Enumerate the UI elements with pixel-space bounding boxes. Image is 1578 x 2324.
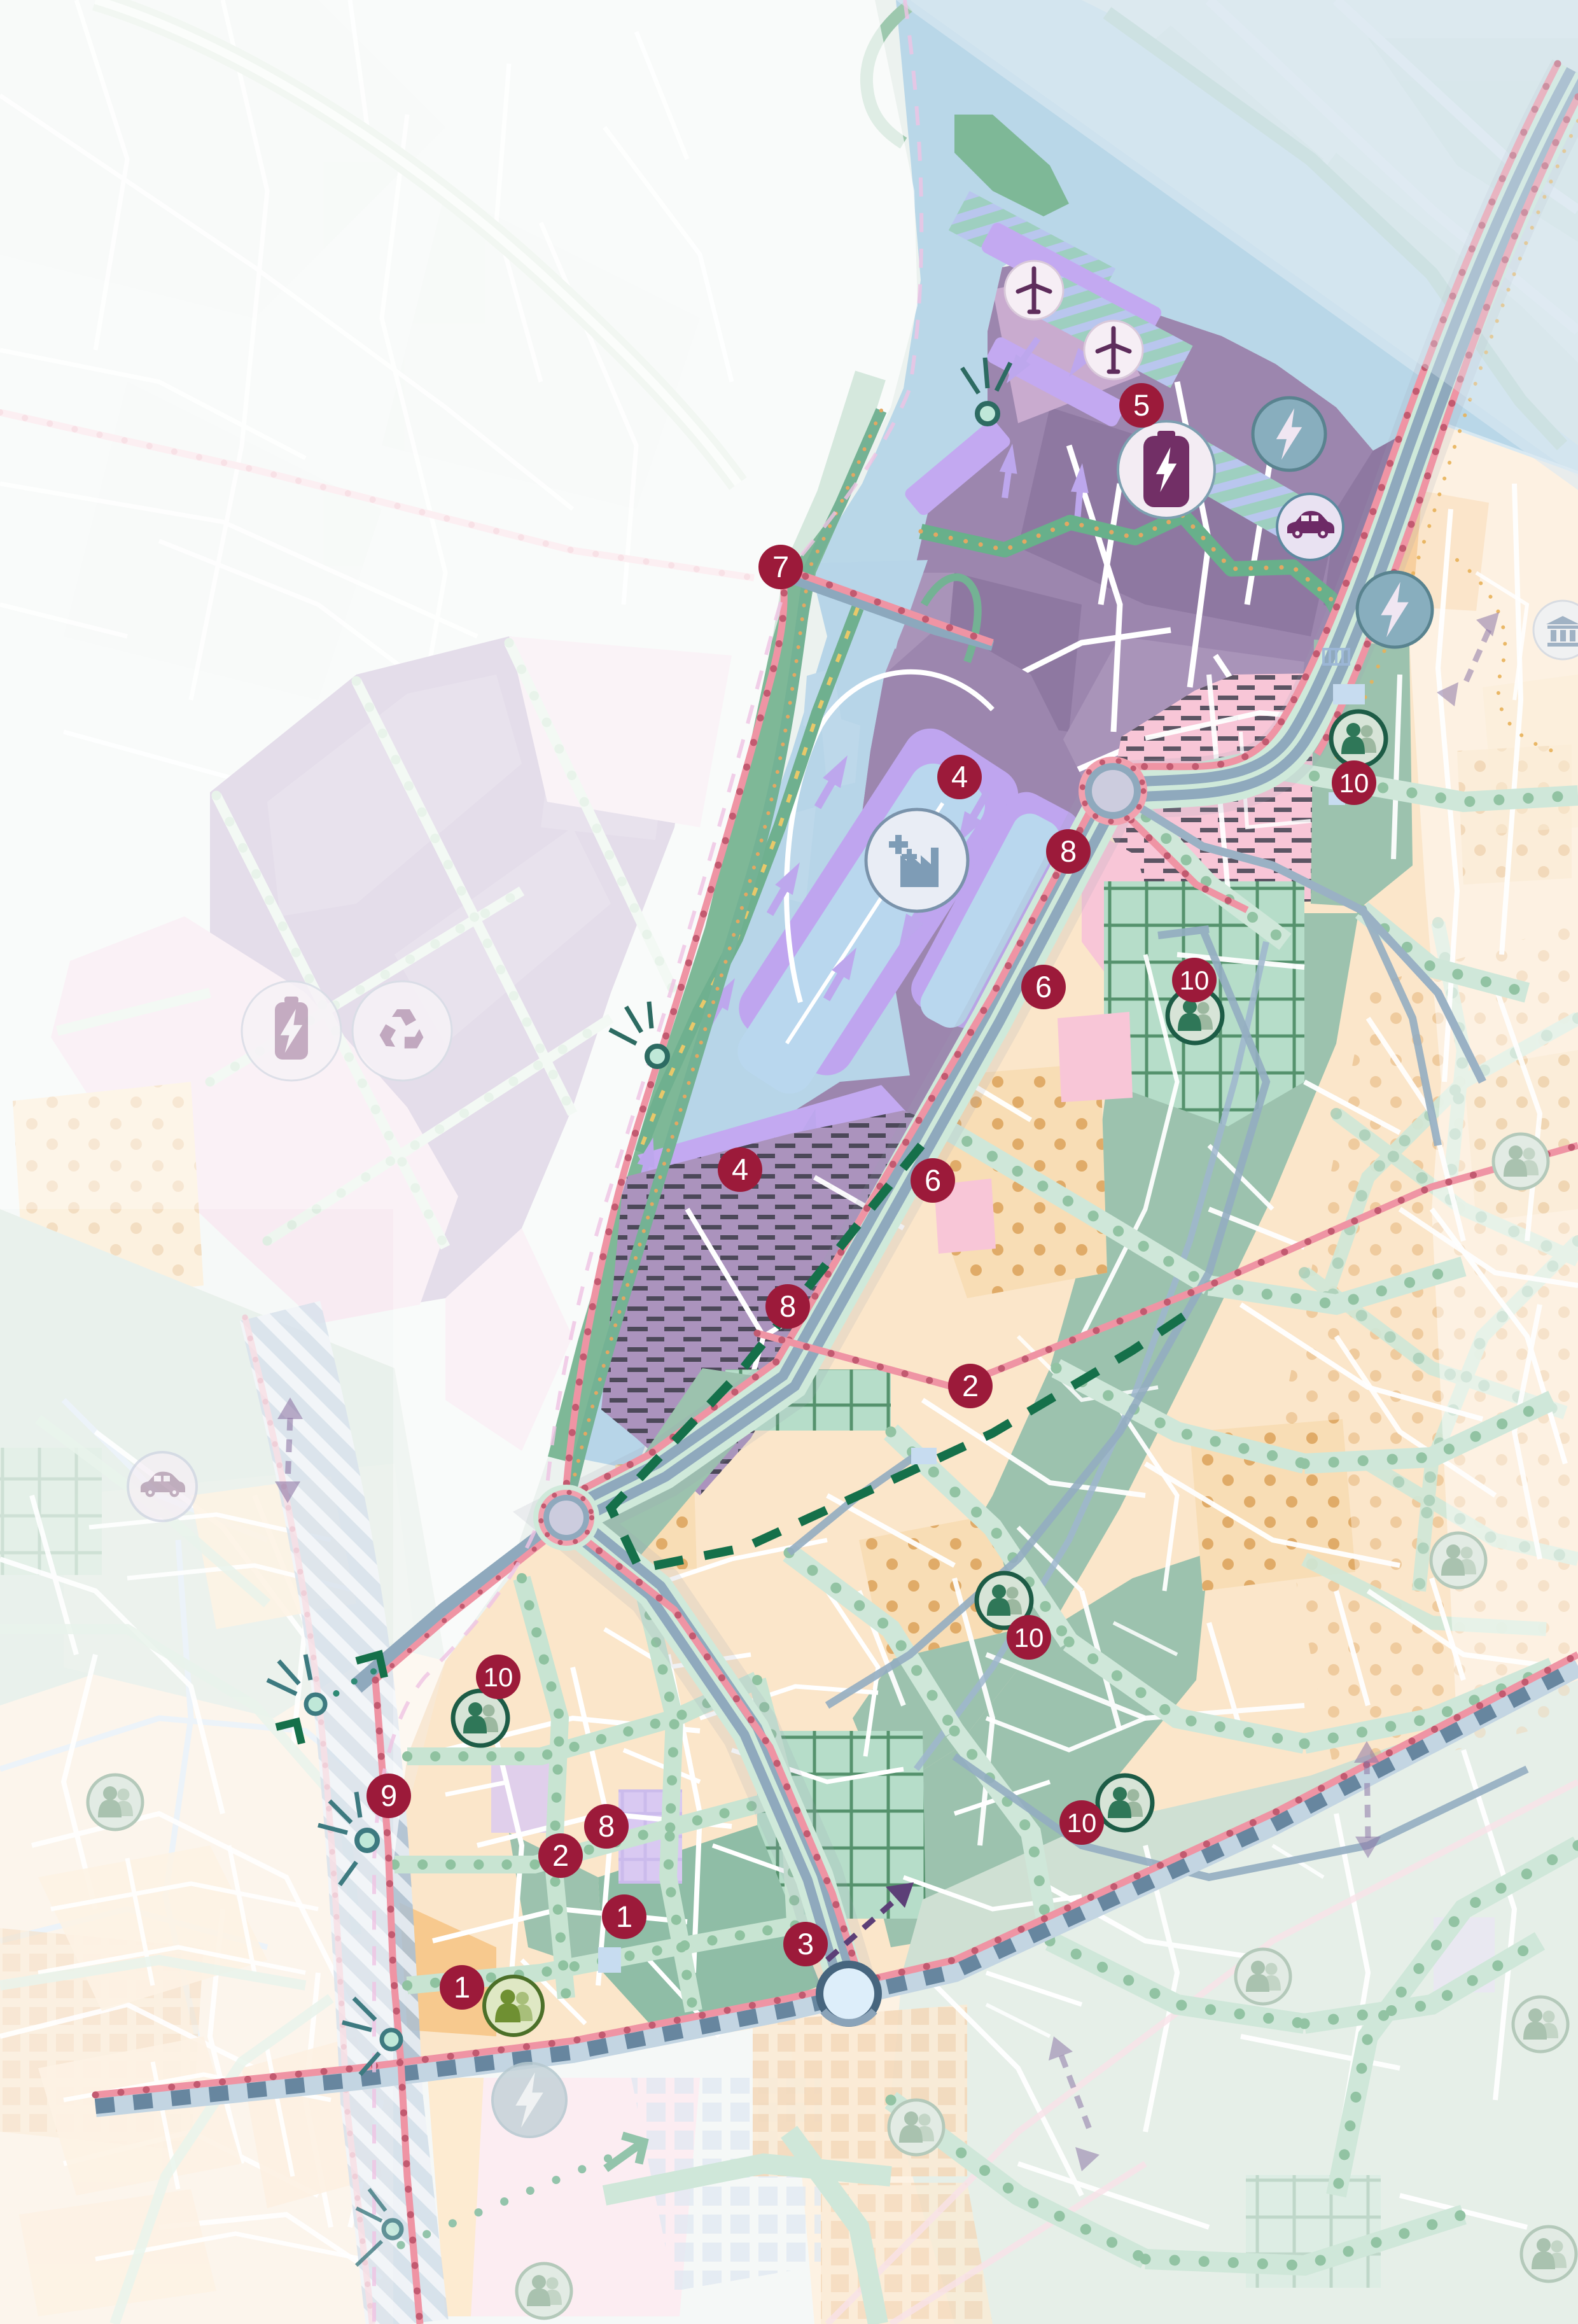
- svg-text:9: 9: [381, 1779, 397, 1812]
- svg-text:3: 3: [797, 1927, 814, 1961]
- svg-text:8: 8: [779, 1289, 796, 1323]
- svg-text:10: 10: [1067, 1808, 1097, 1838]
- svg-text:6: 6: [925, 1163, 941, 1197]
- svg-text:1: 1: [454, 1970, 470, 2004]
- svg-text:2: 2: [552, 1838, 569, 1872]
- svg-text:4: 4: [732, 1152, 748, 1186]
- svg-text:10: 10: [484, 1662, 513, 1692]
- svg-text:1: 1: [616, 1900, 632, 1933]
- svg-text:10: 10: [1180, 965, 1210, 995]
- svg-text:4: 4: [951, 760, 968, 794]
- svg-text:6: 6: [1035, 970, 1052, 1004]
- svg-text:7: 7: [772, 550, 789, 584]
- svg-text:8: 8: [598, 1809, 615, 1843]
- svg-text:2: 2: [962, 1369, 979, 1403]
- svg-text:10: 10: [1014, 1623, 1044, 1653]
- svg-text:8: 8: [1060, 834, 1077, 868]
- svg-text:10: 10: [1339, 768, 1369, 798]
- svg-text:5: 5: [1133, 388, 1150, 422]
